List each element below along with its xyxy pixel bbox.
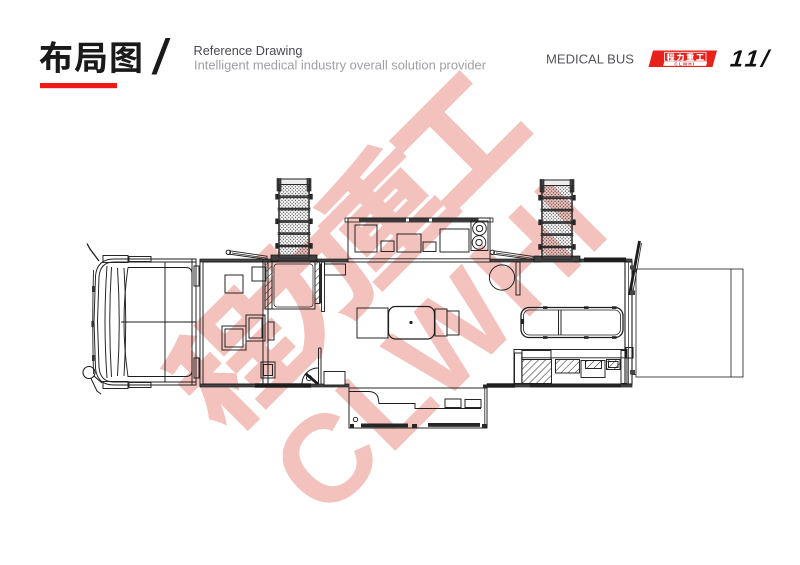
svg-text:11/: 11/ — [729, 46, 773, 72]
svg-text:CLWHI: CLWHI — [674, 61, 695, 66]
svg-text:MEDICAL BUS: MEDICAL BUS — [546, 51, 634, 66]
svg-text:Reference Drawing: Reference Drawing — [194, 43, 303, 58]
svg-text:Intelligent medical industry o: Intelligent medical industry overall sol… — [194, 57, 487, 72]
